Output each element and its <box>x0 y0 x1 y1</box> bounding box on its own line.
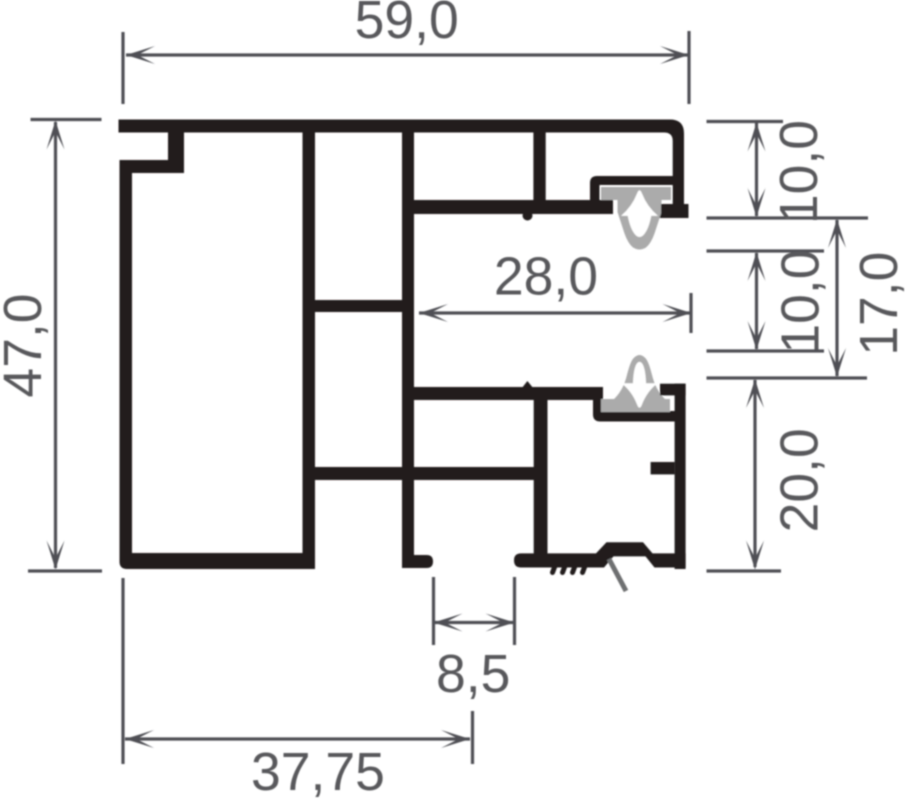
svg-text:8,5: 8,5 <box>436 645 510 704</box>
svg-text:37,75: 37,75 <box>251 743 385 800</box>
svg-text:10,0: 10,0 <box>770 120 829 224</box>
svg-text:28,0: 28,0 <box>494 248 598 307</box>
svg-text:20,0: 20,0 <box>770 428 829 532</box>
svg-text:47,0: 47,0 <box>0 293 53 397</box>
svg-text:17,0: 17,0 <box>850 252 906 356</box>
svg-text:59,0: 59,0 <box>355 0 459 50</box>
svg-text:10,0: 10,0 <box>772 250 831 354</box>
